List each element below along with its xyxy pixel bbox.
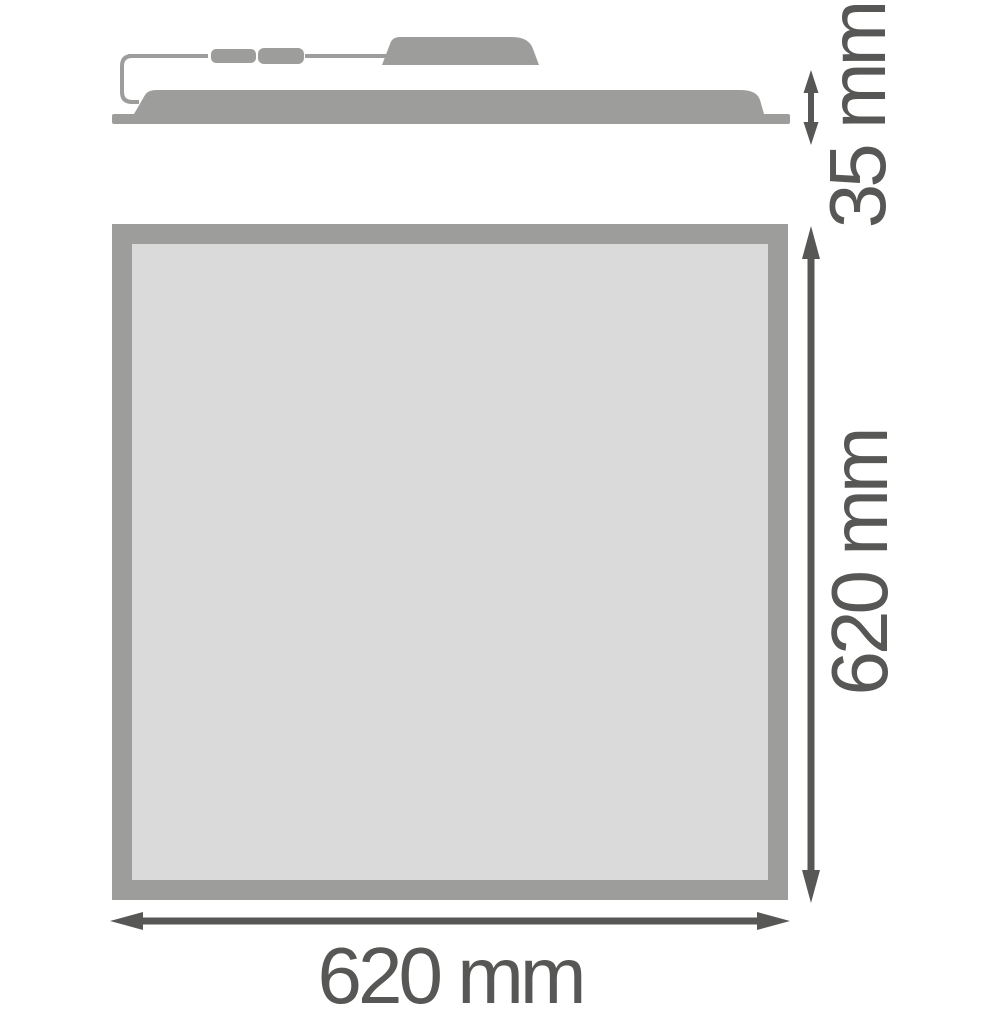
height-arrowhead-bottom (802, 870, 820, 903)
width-dimension-arrow (110, 912, 790, 930)
thickness-dimension-label: 35 mm (818, 4, 898, 229)
height-dimension-label: 620 mm (820, 431, 900, 696)
width-dimension-label: 620 mm (318, 936, 583, 1016)
height-arrowhead-top (802, 226, 820, 259)
width-arrowhead-right (757, 912, 790, 930)
width-arrowhead-left (110, 912, 143, 930)
dimension-drawing: 35 mm 620 mm 620 mm (0, 0, 1000, 1000)
